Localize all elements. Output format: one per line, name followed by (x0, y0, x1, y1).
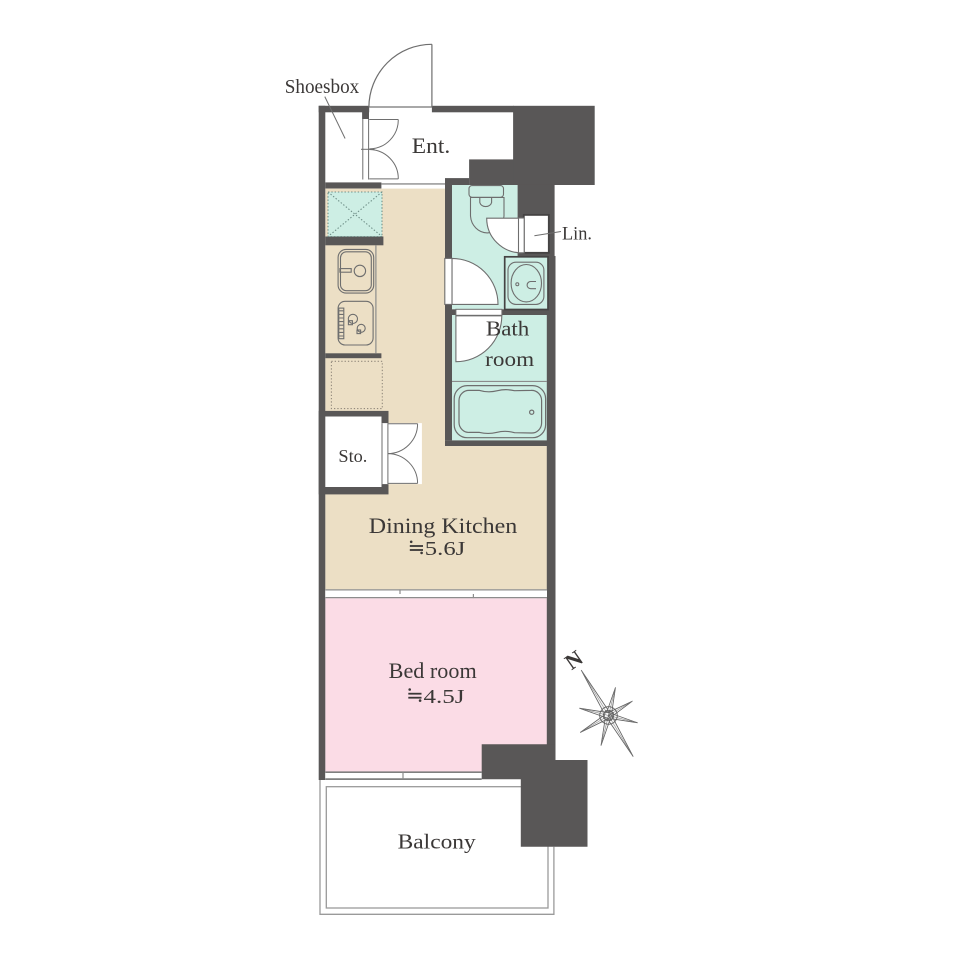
svg-text:5.6J: 5.6J (425, 538, 466, 560)
svg-text:Ent.: Ent. (412, 133, 451, 158)
svg-text:Bed room: Bed room (389, 658, 477, 683)
svg-text:Lin.: Lin. (562, 224, 592, 245)
svg-text:room: room (485, 347, 534, 371)
svg-text:Dining Kitchen: Dining Kitchen (369, 513, 518, 538)
svg-text:Shoesbox: Shoesbox (285, 76, 360, 98)
svg-text:4.5J: 4.5J (424, 686, 465, 708)
svg-text:Balcony: Balcony (398, 830, 477, 854)
svg-text:Sto.: Sto. (338, 446, 367, 466)
svg-text:Bath: Bath (486, 316, 530, 340)
